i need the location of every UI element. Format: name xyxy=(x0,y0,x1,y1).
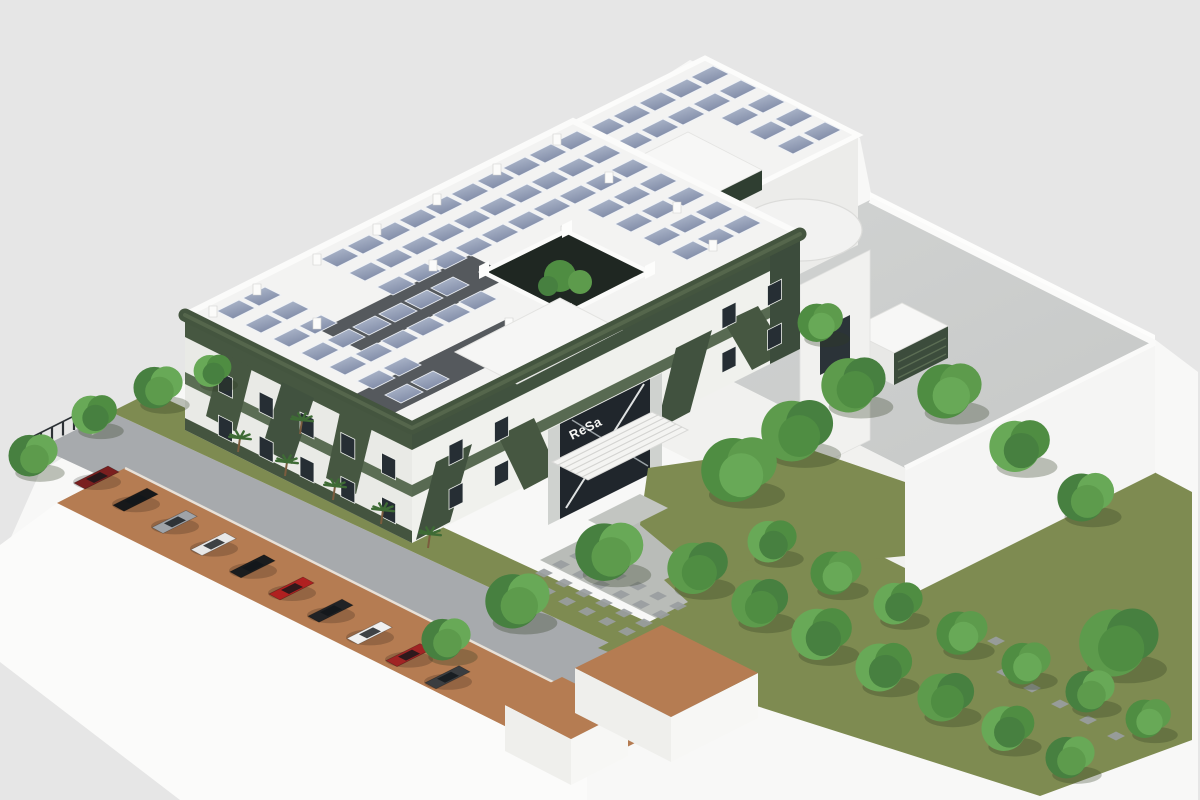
roof-post xyxy=(313,318,321,329)
palm-frond xyxy=(383,510,394,511)
entrance-column xyxy=(548,424,560,525)
tree-foliage xyxy=(1077,681,1106,710)
roof-post xyxy=(313,254,321,265)
tree-foliage xyxy=(82,405,108,431)
tree-foliage xyxy=(949,622,979,652)
palm-frond xyxy=(291,419,302,420)
tree-foliage xyxy=(885,593,914,622)
roof-post xyxy=(209,306,217,317)
roof-post xyxy=(429,260,437,271)
tree-foliage xyxy=(20,445,49,474)
tree-foliage xyxy=(994,717,1025,748)
roof-post xyxy=(553,134,561,145)
tree-foliage xyxy=(933,377,970,414)
palm-frond xyxy=(335,486,346,487)
tree-foliage xyxy=(806,621,841,656)
palm-frond xyxy=(276,461,287,462)
rendering-canvas: ReSa xyxy=(0,0,1200,800)
roof-post xyxy=(493,164,501,175)
roof-post xyxy=(373,224,381,235)
tree-foliage xyxy=(1004,433,1039,468)
tree-foliage xyxy=(203,363,225,385)
tree-foliage xyxy=(719,453,763,497)
tree-foliage xyxy=(745,591,778,624)
palm-frond xyxy=(430,534,441,535)
palm-frond xyxy=(372,509,383,510)
roof-post xyxy=(605,172,613,183)
palm-frond xyxy=(302,420,313,421)
tree-foliage xyxy=(1136,709,1162,735)
palm-frond xyxy=(240,438,251,439)
palm-frond xyxy=(229,437,240,438)
tree-foliage xyxy=(145,377,174,406)
tree-foliage xyxy=(1098,625,1144,671)
tree-foliage xyxy=(759,531,788,560)
atrium-tree xyxy=(538,276,558,296)
tree-foliage xyxy=(823,562,853,592)
tree-foliage xyxy=(869,655,902,688)
architectural-rendering: ReSa xyxy=(0,0,1200,800)
palm-frond xyxy=(324,485,335,486)
tree-foliage xyxy=(591,537,631,577)
tree-foliage xyxy=(931,685,964,718)
palm-frond xyxy=(419,533,430,534)
palm-frond xyxy=(287,462,298,463)
roof-post xyxy=(673,202,681,213)
roof-post xyxy=(253,284,261,295)
tree-foliage xyxy=(808,313,834,339)
tree-foliage xyxy=(778,415,820,457)
roof-post xyxy=(433,194,441,205)
tree-foliage xyxy=(433,629,462,658)
tree-foliage xyxy=(1057,747,1086,776)
roof-post xyxy=(709,240,717,251)
tree-foliage xyxy=(501,587,538,624)
tree-foliage xyxy=(837,371,874,408)
atrium-tree xyxy=(568,270,592,294)
tree-foliage xyxy=(1071,485,1104,518)
tree-foliage xyxy=(1013,653,1042,682)
tree-foliage xyxy=(682,555,717,590)
